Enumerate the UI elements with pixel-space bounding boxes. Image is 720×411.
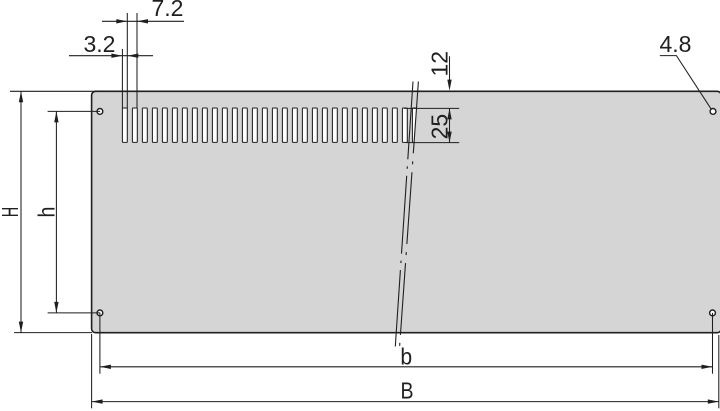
svg-text:h: h bbox=[34, 207, 60, 218]
svg-text:3.2: 3.2 bbox=[84, 31, 116, 57]
svg-text:H: H bbox=[0, 207, 24, 217]
svg-text:12: 12 bbox=[427, 51, 453, 77]
svg-text:b: b bbox=[400, 344, 412, 370]
svg-text:25: 25 bbox=[427, 114, 453, 140]
svg-text:7.2: 7.2 bbox=[152, 0, 184, 21]
svg-text:4.8: 4.8 bbox=[660, 31, 692, 57]
svg-text:B: B bbox=[400, 378, 413, 404]
